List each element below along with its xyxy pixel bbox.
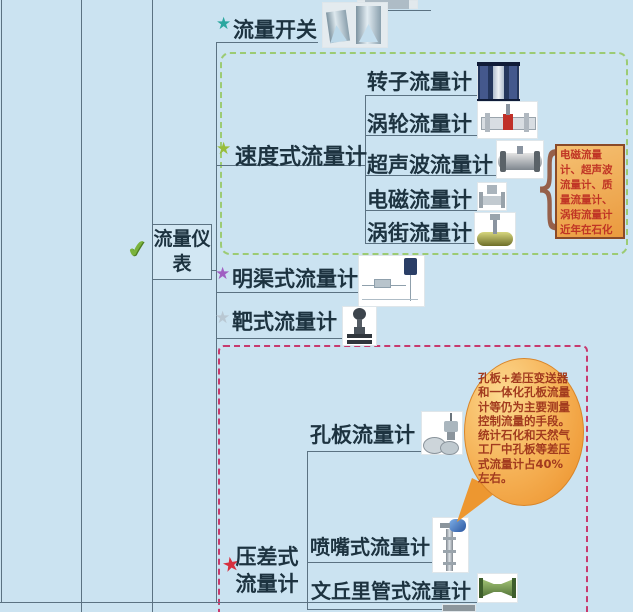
turbine-flowmeter-image[interactable] bbox=[477, 101, 538, 139]
open-channel-flowmeter-image[interactable] bbox=[358, 255, 425, 307]
dp-note-bubble[interactable]: 孔板+差压变送器和一体化孔板流量计等仍为主要测量控制流量的手段。统计石化和天然气… bbox=[464, 358, 584, 506]
dp-note-text: 孔板+差压变送器和一体化孔板流量计等仍为主要测量控制流量的手段。统计石化和天然气… bbox=[478, 371, 574, 485]
node-open-channel-flowmeter[interactable]: 明渠式流量计 bbox=[232, 263, 358, 293]
rotor-flowmeter-image[interactable] bbox=[477, 62, 520, 103]
target-flowmeter-image[interactable] bbox=[342, 306, 377, 346]
node-velocity-flowmeter[interactable]: 速度式流量计 bbox=[235, 139, 367, 171]
star-icon: ★ bbox=[215, 266, 230, 283]
electromagnetic-flowmeter-image[interactable] bbox=[477, 182, 507, 211]
tree-line bbox=[81, 0, 82, 612]
node-target-flowmeter[interactable]: 靶式流量计 bbox=[232, 306, 337, 336]
flow-switch-image[interactable] bbox=[322, 2, 388, 48]
node-electromagnetic-flowmeter[interactable]: 电磁流量计 bbox=[367, 184, 472, 214]
nozzle-flowmeter-image[interactable] bbox=[432, 517, 469, 573]
node-rotor-flowmeter[interactable]: 转子流量计 bbox=[367, 66, 472, 96]
child-underline bbox=[307, 562, 433, 563]
orifice-flowmeter-image[interactable] bbox=[421, 411, 463, 455]
node-ultrasonic-flowmeter[interactable]: 超声波流量计 bbox=[367, 149, 493, 179]
venturi-flowmeter-image[interactable] bbox=[477, 573, 518, 603]
root-node-flow-instruments[interactable]: 流量仪表 bbox=[152, 224, 212, 280]
branch-underline bbox=[216, 338, 345, 339]
dp-subspine bbox=[307, 451, 308, 610]
node-venturi-flowmeter[interactable]: 文丘里管式流量计 bbox=[311, 575, 471, 604]
child-underline bbox=[307, 609, 442, 610]
tree-line bbox=[152, 0, 153, 612]
velocity-note[interactable]: 电磁流量计、超声波流量计、质量流量计、涡街流量计近年在石化较大使用 bbox=[555, 144, 625, 239]
root-node-label: 流量仪表 bbox=[153, 227, 211, 277]
cutoff-node-image-bottom bbox=[442, 604, 476, 612]
node-differential-pressure-flowmeter[interactable]: 压差式流量计 bbox=[234, 544, 300, 598]
node-turbine-flowmeter[interactable]: 涡轮流量计 bbox=[367, 108, 472, 138]
node-orifice-flowmeter[interactable]: 孔板流量计 bbox=[310, 419, 415, 449]
star-icon: ★ bbox=[216, 141, 231, 158]
tree-line bbox=[1, 0, 2, 602]
node-nozzle-flowmeter[interactable]: 喷嘴式流量计 bbox=[310, 531, 430, 560]
node-flow-switch[interactable]: 流量开关 bbox=[233, 14, 317, 44]
star-icon: ★ bbox=[215, 310, 230, 327]
check-icon: ✔ bbox=[125, 236, 148, 263]
mindmap-canvas: ✔ 流量仪表 ★ 流量开关 ★ 速度式流量计 转子流量计 涡轮流量计 超声波流量… bbox=[0, 0, 633, 612]
vortex-flowmeter-image[interactable] bbox=[474, 212, 516, 250]
child-underline bbox=[307, 451, 425, 452]
node-vortex-flowmeter[interactable]: 涡街流量计 bbox=[367, 217, 472, 247]
star-icon: ★ bbox=[216, 16, 231, 33]
